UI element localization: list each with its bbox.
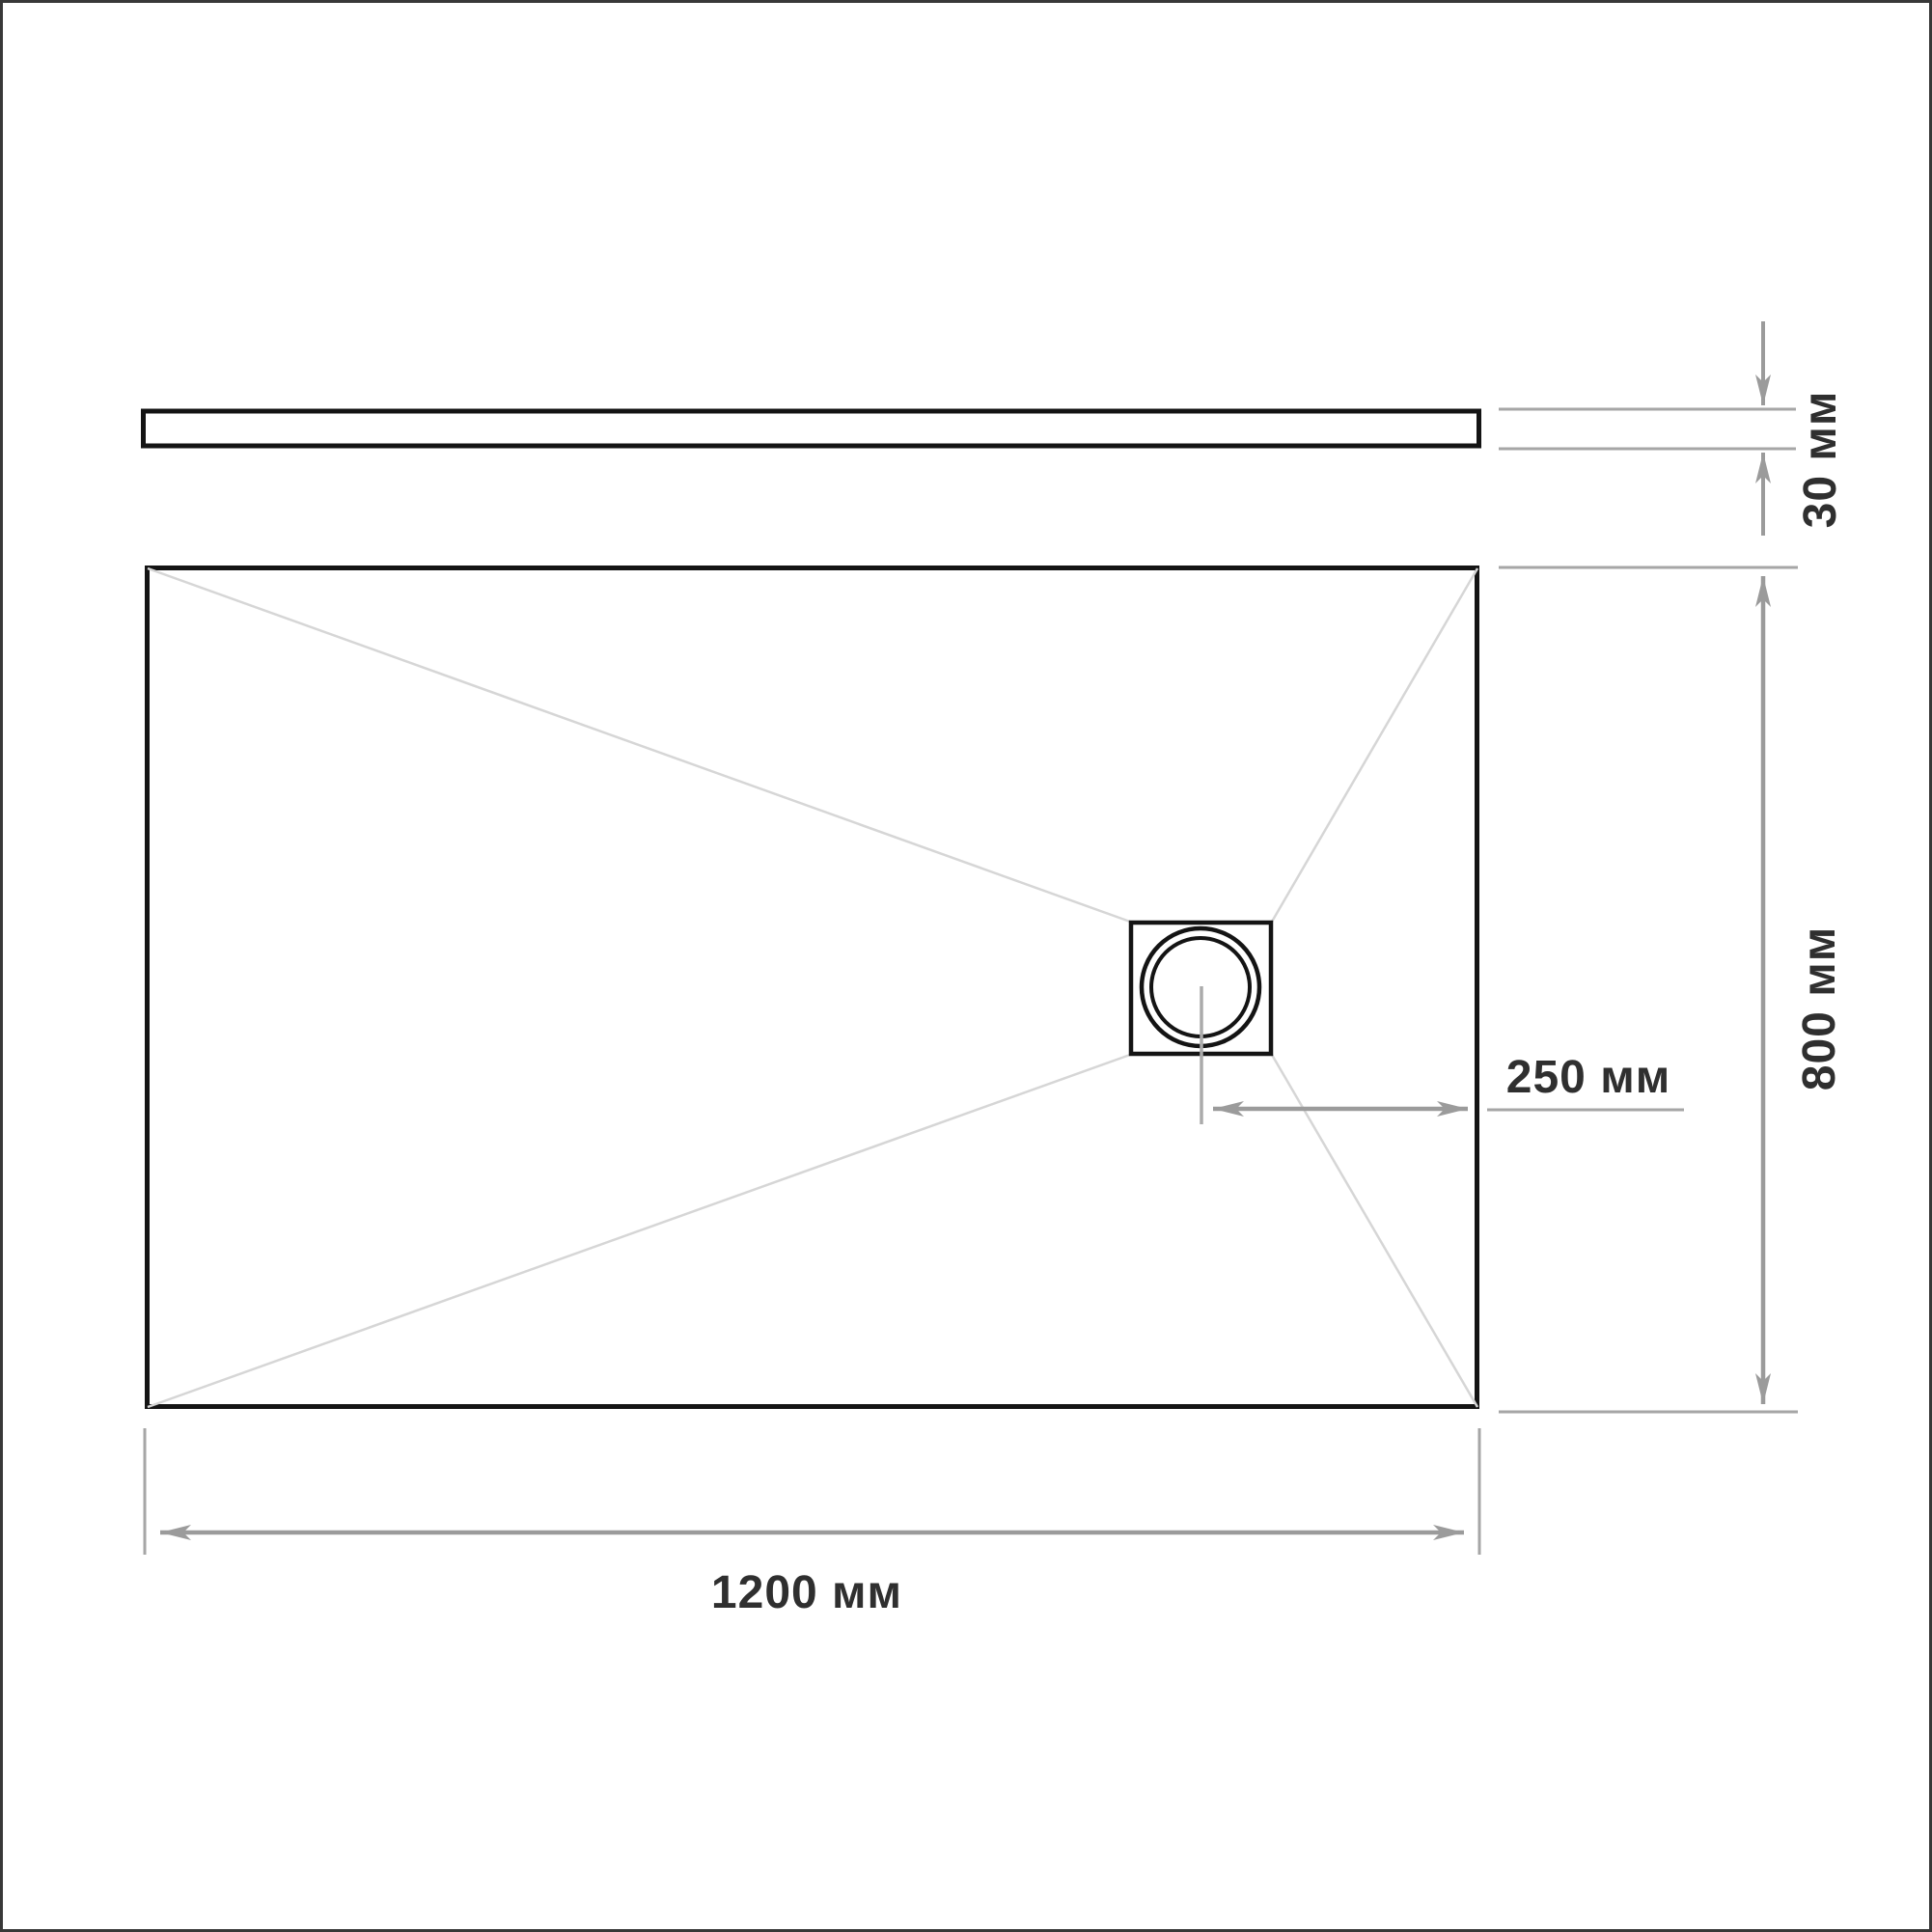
drawing-linework — [3, 3, 1932, 1932]
top-view-tray-outline — [148, 568, 1477, 1407]
length-extension-lines — [145, 1428, 1479, 1555]
drain-offset-dimension-label: 250 мм — [1463, 1051, 1714, 1105]
thickness-dimension-label: 30 мм — [1792, 363, 1850, 556]
technical-drawing-canvas: 30 мм 800 мм 250 мм 1200 мм — [0, 0, 1932, 1932]
length-dimension-label: 1200 мм — [662, 1566, 952, 1620]
depth-dimension-label: 800 мм — [1791, 912, 1849, 1105]
thickness-extension-lines — [1499, 409, 1796, 449]
depth-extension-lines — [1499, 567, 1798, 1412]
side-view-slab — [144, 411, 1479, 446]
